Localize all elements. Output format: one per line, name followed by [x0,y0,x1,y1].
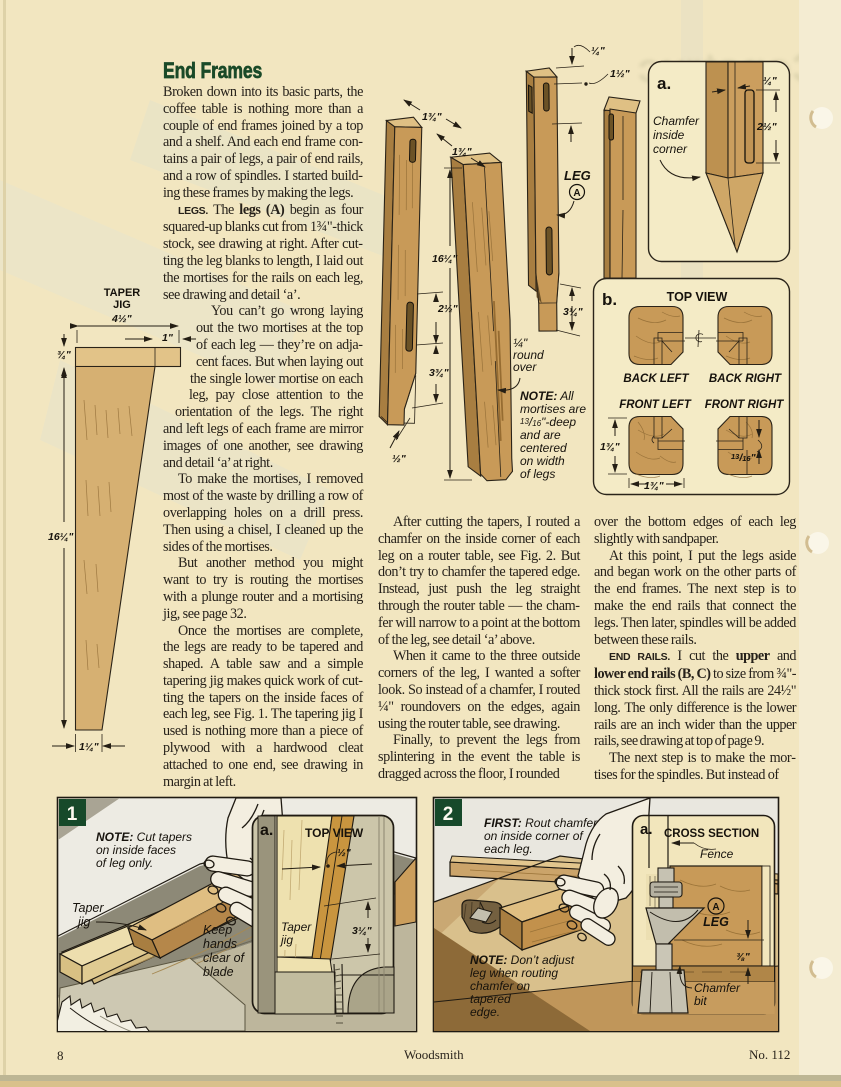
svg-text:on width: on width [520,454,565,468]
svg-text:Fence: Fence [700,847,734,861]
svg-text:½": ½" [337,847,352,859]
svg-text:TOP VIEW: TOP VIEW [305,826,364,840]
svg-text:1½": 1½" [610,68,631,80]
svg-text:Chamfer: Chamfer [653,114,700,128]
svg-text:1¾": 1¾" [600,441,621,453]
svg-text:1: 1 [67,804,78,825]
svg-text:JIG: JIG [113,299,131,311]
svg-text:and are: and are [520,428,561,442]
svg-text:Keep: Keep [203,923,232,937]
svg-text:a.: a. [657,74,671,93]
svg-text:a.: a. [640,821,653,838]
svg-text:corner: corner [653,142,688,156]
svg-text:LEG: LEG [564,168,591,183]
svg-text:4½": 4½" [111,313,133,325]
svg-text:inside: inside [653,128,685,142]
svg-text:NOTE: Don’t adjust: NOTE: Don’t adjust [470,953,575,967]
svg-text:a.: a. [260,822,273,839]
svg-text:CROSS SECTION: CROSS SECTION [664,828,759,840]
svg-text:A: A [712,902,719,913]
svg-text:jig: jig [279,933,293,947]
svg-text:Taper: Taper [72,901,104,915]
svg-text:hands: hands [203,937,237,951]
svg-text:TAPER: TAPER [104,287,141,299]
svg-text:1¾": 1¾" [452,146,473,158]
svg-text:¼": ¼" [591,45,606,57]
svg-text:2½": 2½" [437,303,459,315]
svg-text:b.: b. [602,290,617,309]
svg-text:FIRST: Rout chamfer: FIRST: Rout chamfer [484,816,598,830]
svg-text:3¾": 3¾" [429,367,450,379]
svg-text:3¼": 3¼" [563,306,584,318]
svg-text:3¼": 3¼" [352,925,373,937]
svg-text:leg when routing: leg when routing [470,966,558,980]
svg-text:jig: jig [76,915,91,929]
svg-text:Chamfer: Chamfer [694,981,741,995]
svg-text:FRONT LEFT: FRONT LEFT [619,399,692,411]
svg-text:mortises are: mortises are [520,402,586,416]
svg-text:TOP VIEW: TOP VIEW [667,290,728,304]
svg-text:FRONT RIGHT: FRONT RIGHT [705,399,785,411]
svg-text:13/16"-deep: 13/16"-deep [520,415,576,429]
svg-text:LEG: LEG [703,915,729,929]
svg-text:each leg.: each leg. [484,842,533,856]
svg-text:centered: centered [520,441,567,455]
svg-text:over: over [513,360,537,374]
svg-text:of leg only.: of leg only. [96,856,153,870]
svg-text:edge.: edge. [470,1005,500,1019]
svg-text:1¾": 1¾" [422,111,443,123]
svg-text:⅜": ⅜" [736,951,751,963]
svg-text:1": 1" [162,332,174,344]
svg-text:BACK RIGHT: BACK RIGHT [709,373,782,385]
svg-text:16¼": 16¼" [48,531,74,543]
svg-text:2: 2 [443,804,454,825]
svg-text:BACK LEFT: BACK LEFT [623,373,689,385]
svg-text:1¾": 1¾" [644,480,665,492]
svg-text:NOTE: All: NOTE: All [520,389,574,403]
svg-text:on inside faces: on inside faces [96,843,176,857]
svg-text:½": ½" [392,453,407,465]
svg-text:A: A [573,188,580,199]
svg-text:chamfer on: chamfer on [470,979,530,993]
svg-text:¼": ¼" [763,75,778,87]
svg-text:¾": ¾" [57,349,72,361]
svg-text:clear of: clear of [203,951,246,965]
svg-text:blade: blade [203,965,234,979]
svg-text:16¼": 16¼" [432,253,458,265]
svg-text:of legs: of legs [520,467,555,481]
svg-text:bit: bit [694,994,707,1008]
svg-text:1¼": 1¼" [79,741,100,753]
svg-text:NOTE: Cut tapers: NOTE: Cut tapers [96,830,192,844]
svg-text:Taper: Taper [281,920,312,934]
svg-text:tapered: tapered [470,992,511,1006]
svg-text:2½": 2½" [756,121,778,133]
svg-text:on inside corner of: on inside corner of [484,829,584,843]
